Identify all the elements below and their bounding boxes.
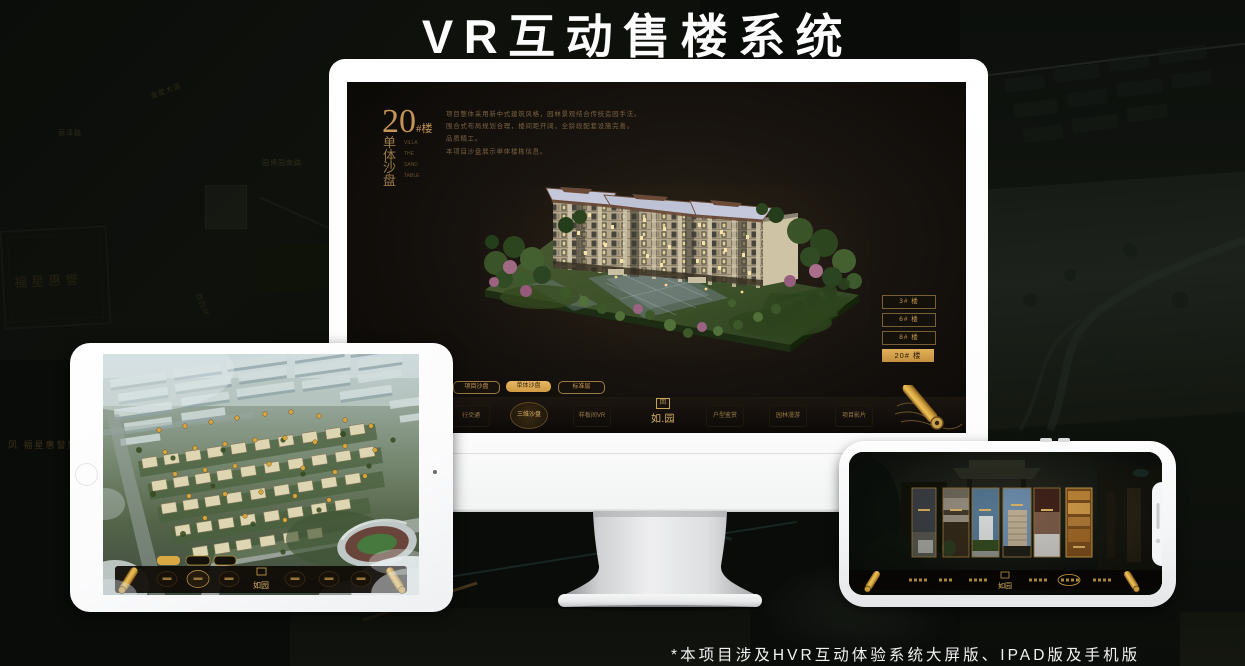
svg-text:如园: 如园 [253, 580, 269, 590]
svg-text:如园: 如园 [998, 581, 1012, 590]
